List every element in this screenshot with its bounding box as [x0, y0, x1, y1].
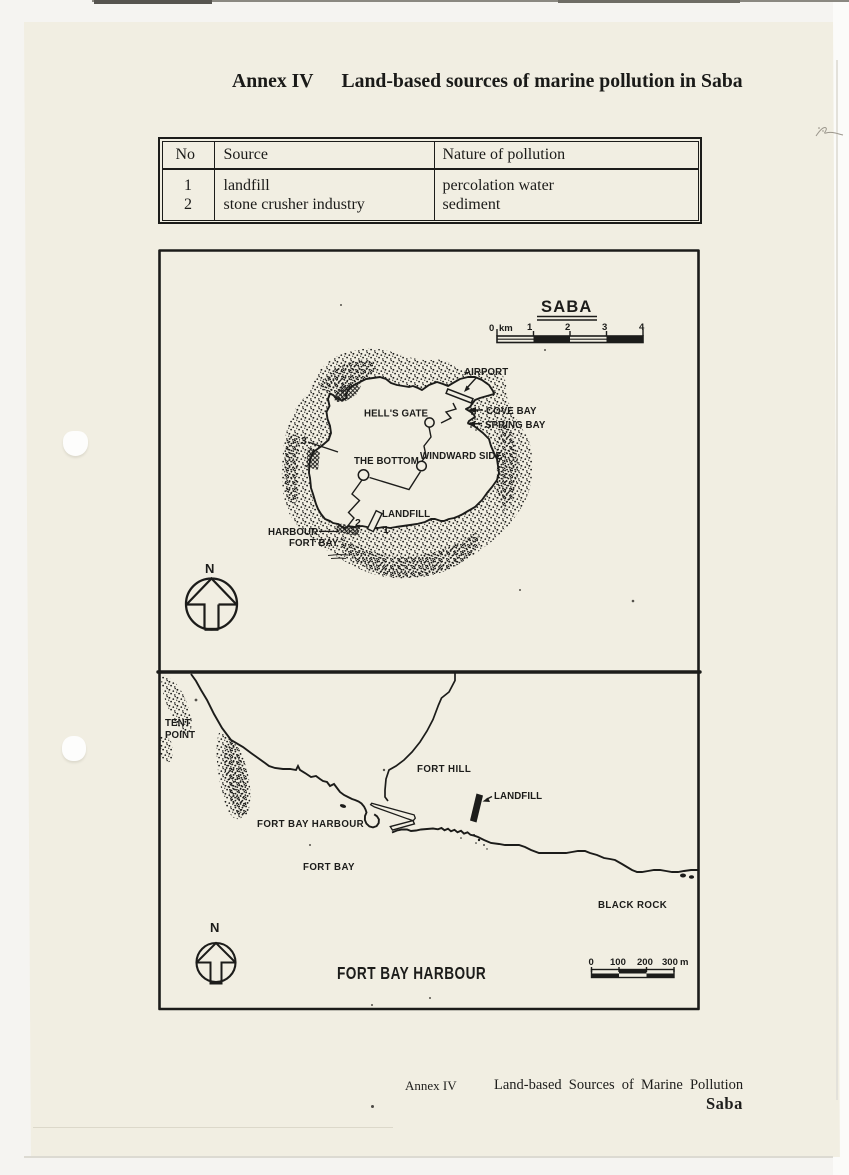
svg-text:FORT BAY: FORT BAY — [303, 862, 355, 873]
svg-text:200: 200 — [637, 957, 653, 968]
svg-text:N: N — [205, 561, 214, 576]
svg-text:FORT BAY HARBOUR: FORT BAY HARBOUR — [257, 819, 364, 830]
svg-text:m: m — [680, 957, 688, 968]
svg-text:THE BOTTOM: THE BOTTOM — [354, 456, 419, 467]
svg-text:HARBOUR: HARBOUR — [268, 527, 318, 538]
svg-text:300: 300 — [662, 957, 678, 968]
svg-text:FORT HILL: FORT HILL — [417, 764, 471, 775]
svg-text:FORT BAY HARBOUR: FORT BAY HARBOUR — [337, 965, 486, 984]
svg-text:WINDWARD SIDE: WINDWARD SIDE — [420, 451, 502, 462]
svg-text:4: 4 — [639, 322, 645, 333]
svg-text:N: N — [210, 920, 219, 935]
svg-text:LANDFILL: LANDFILL — [382, 509, 430, 520]
svg-text:2: 2 — [355, 517, 361, 529]
svg-text:FORT BAY: FORT BAY — [289, 538, 339, 549]
svg-text:1: 1 — [527, 322, 533, 333]
svg-text:0: 0 — [489, 323, 494, 334]
svg-text:100: 100 — [610, 957, 626, 968]
svg-text:LANDFILL: LANDFILL — [494, 791, 542, 802]
svg-text:HELL'S GATE: HELL'S GATE — [364, 409, 428, 420]
svg-text:SPRING BAY: SPRING BAY — [485, 420, 546, 431]
svg-text:SABA: SABA — [541, 298, 593, 316]
svg-text:0: 0 — [589, 957, 594, 968]
svg-text:3: 3 — [301, 435, 307, 447]
svg-text:COVE BAY: COVE BAY — [486, 406, 537, 417]
svg-text:1: 1 — [383, 524, 389, 536]
svg-text:BLACK ROCK: BLACK ROCK — [598, 900, 667, 911]
svg-text:AIRPORT: AIRPORT — [464, 367, 508, 378]
svg-text:km: km — [499, 323, 513, 334]
